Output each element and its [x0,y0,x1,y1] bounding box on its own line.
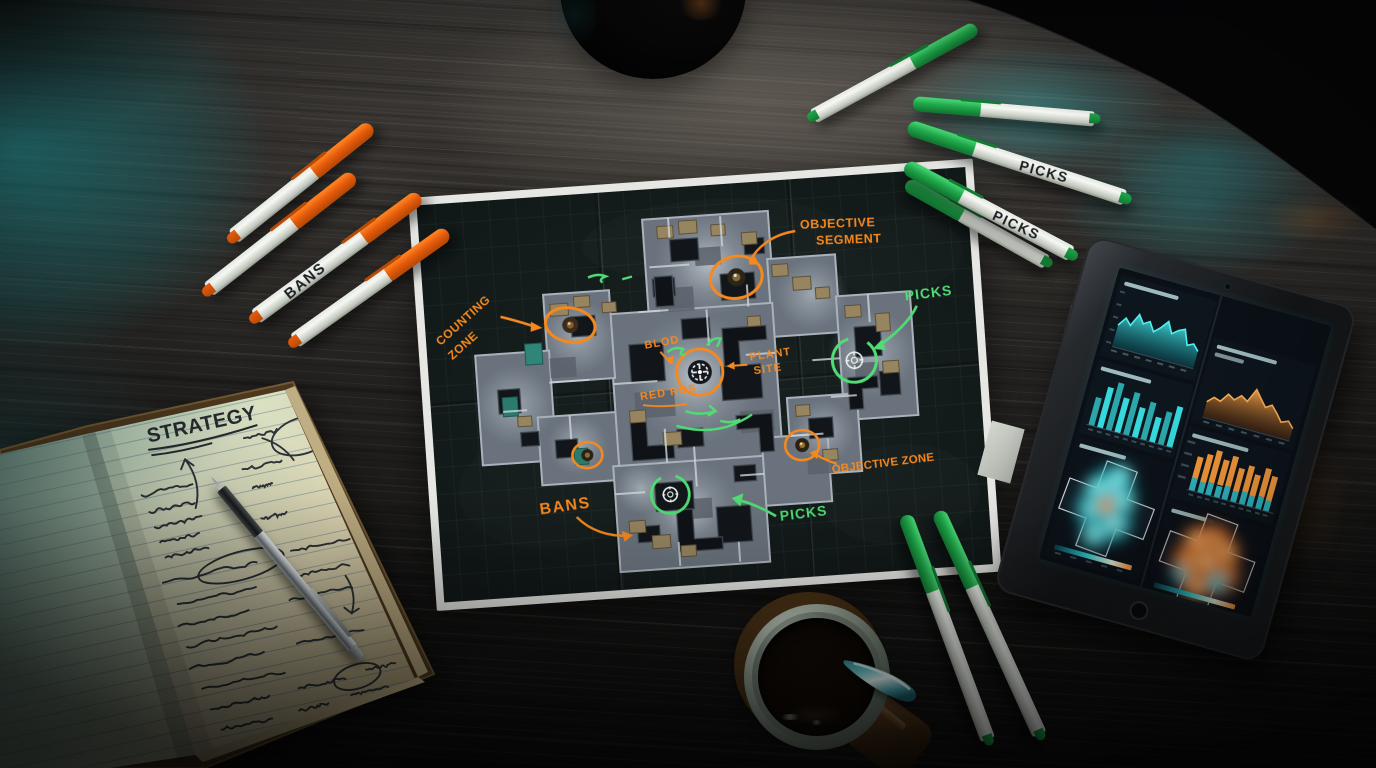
svg-text:OBJECTIVE: OBJECTIVE [800,215,876,232]
svg-text:SEGMENT: SEGMENT [816,231,882,247]
